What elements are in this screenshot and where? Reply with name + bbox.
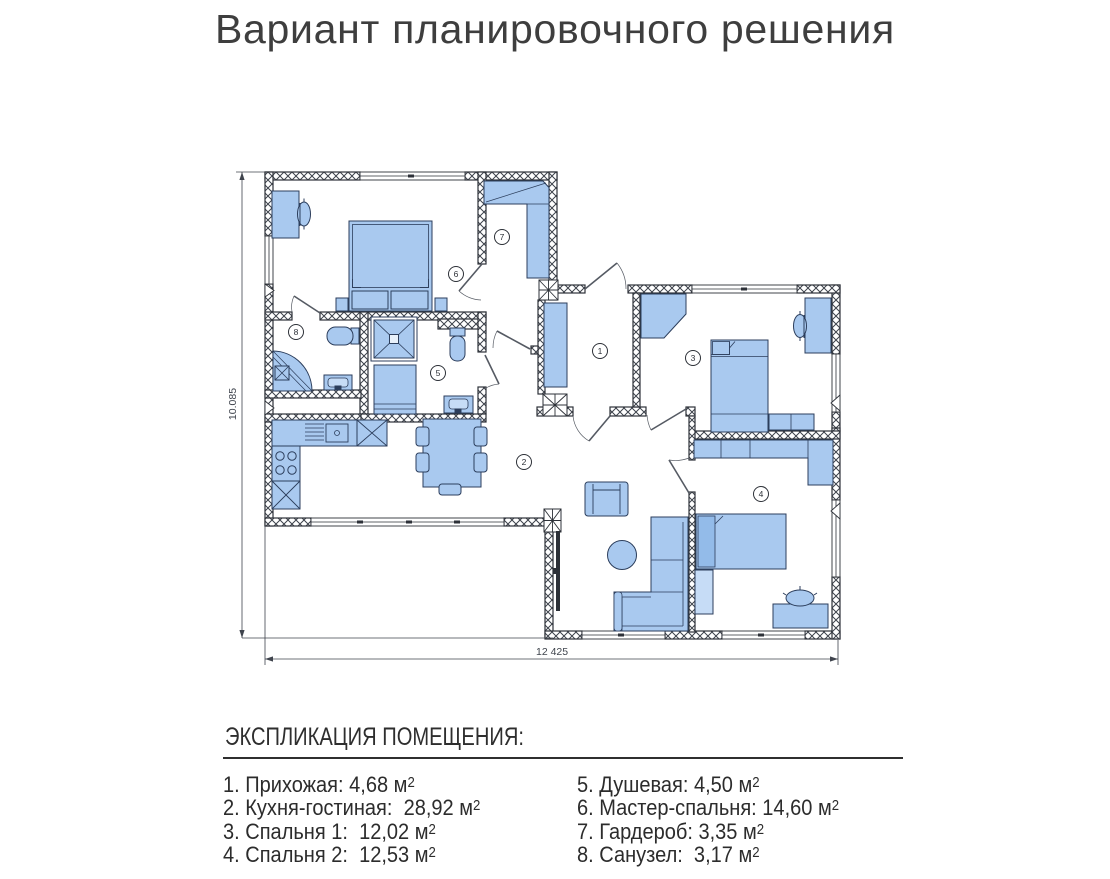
svg-text:12 425: 12 425 <box>536 646 568 658</box>
svg-text:10.085: 10.085 <box>227 388 239 420</box>
svg-text:2: 2 <box>522 457 527 467</box>
svg-text:5: 5 <box>436 368 441 378</box>
svg-text:7: 7 <box>500 232 505 242</box>
svg-text:1: 1 <box>598 346 603 356</box>
svg-text:8: 8 <box>294 327 299 337</box>
svg-text:3: 3 <box>691 353 696 363</box>
svg-text:4: 4 <box>759 489 764 499</box>
svg-text:6: 6 <box>454 269 459 279</box>
